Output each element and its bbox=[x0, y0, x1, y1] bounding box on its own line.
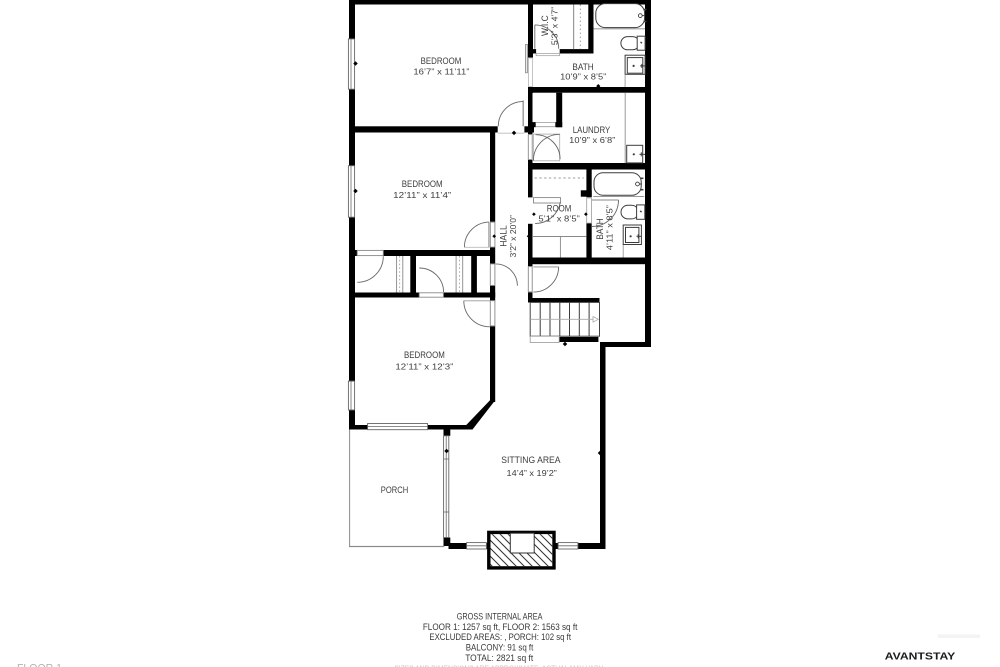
svg-text:3’2” x 20’0”: 3’2” x 20’0” bbox=[508, 215, 518, 257]
svg-text:SIZES AND DIMENSIONS ARE APPRO: SIZES AND DIMENSIONS ARE APPROXIMATE, AC… bbox=[394, 664, 603, 667]
svg-text:GROSS INTERNAL AREA: GROSS INTERNAL AREA bbox=[457, 611, 543, 621]
svg-text:BEDROOM: BEDROOM bbox=[402, 179, 443, 189]
svg-text:BATH: BATH bbox=[595, 218, 605, 239]
svg-text:10’9” x 8’5”: 10’9” x 8’5” bbox=[560, 72, 606, 82]
svg-text:5’3” x 4’7”: 5’3” x 4’7” bbox=[549, 7, 559, 45]
svg-text:TOTAL: 2821 sq ft: TOTAL: 2821 sq ft bbox=[465, 653, 533, 663]
svg-text:10’9” x 6’8”: 10’9” x 6’8” bbox=[569, 135, 615, 145]
svg-text:BEDROOM: BEDROOM bbox=[404, 350, 445, 360]
svg-text:4’11” x 8’5”: 4’11” x 8’5” bbox=[605, 205, 615, 250]
svg-text:FLOOR 1: FLOOR 1 bbox=[17, 663, 62, 667]
svg-text:5’1” x 8’5”: 5’1” x 8’5” bbox=[538, 214, 580, 224]
svg-text:BEDROOM: BEDROOM bbox=[421, 56, 462, 66]
svg-text:HALL: HALL bbox=[498, 225, 508, 247]
svg-text:12’11” x 11’4”: 12’11” x 11’4” bbox=[393, 190, 451, 200]
svg-text:ROOM: ROOM bbox=[547, 203, 572, 213]
svg-text:FLOOR 1: 1257 sq ft, FLOOR 2:: FLOOR 1: 1257 sq ft, FLOOR 2: 1563 sq ft bbox=[423, 622, 578, 632]
svg-text:W.I.C: W.I.C bbox=[540, 15, 550, 36]
svg-text:BATH: BATH bbox=[572, 62, 593, 72]
svg-text:BALCONY: 91 sq ft: BALCONY: 91 sq ft bbox=[466, 643, 534, 653]
svg-text:14’4” x 19’2”: 14’4” x 19’2” bbox=[507, 468, 557, 478]
svg-text:PORCH: PORCH bbox=[381, 485, 409, 495]
svg-text:EXCLUDED AREAS: , PORCH: 102 s: EXCLUDED AREAS: , PORCH: 102 sq ft bbox=[429, 632, 571, 642]
svg-text:12’11” x 12’3”: 12’11” x 12’3” bbox=[395, 361, 453, 371]
svg-text:LAUNDRY: LAUNDRY bbox=[573, 125, 611, 135]
svg-text:16’7” x 11’11”: 16’7” x 11’11” bbox=[413, 66, 469, 76]
svg-text:AVANTSTAY: AVANTSTAY bbox=[885, 651, 956, 662]
svg-text:SITTING AREA: SITTING AREA bbox=[501, 455, 560, 465]
